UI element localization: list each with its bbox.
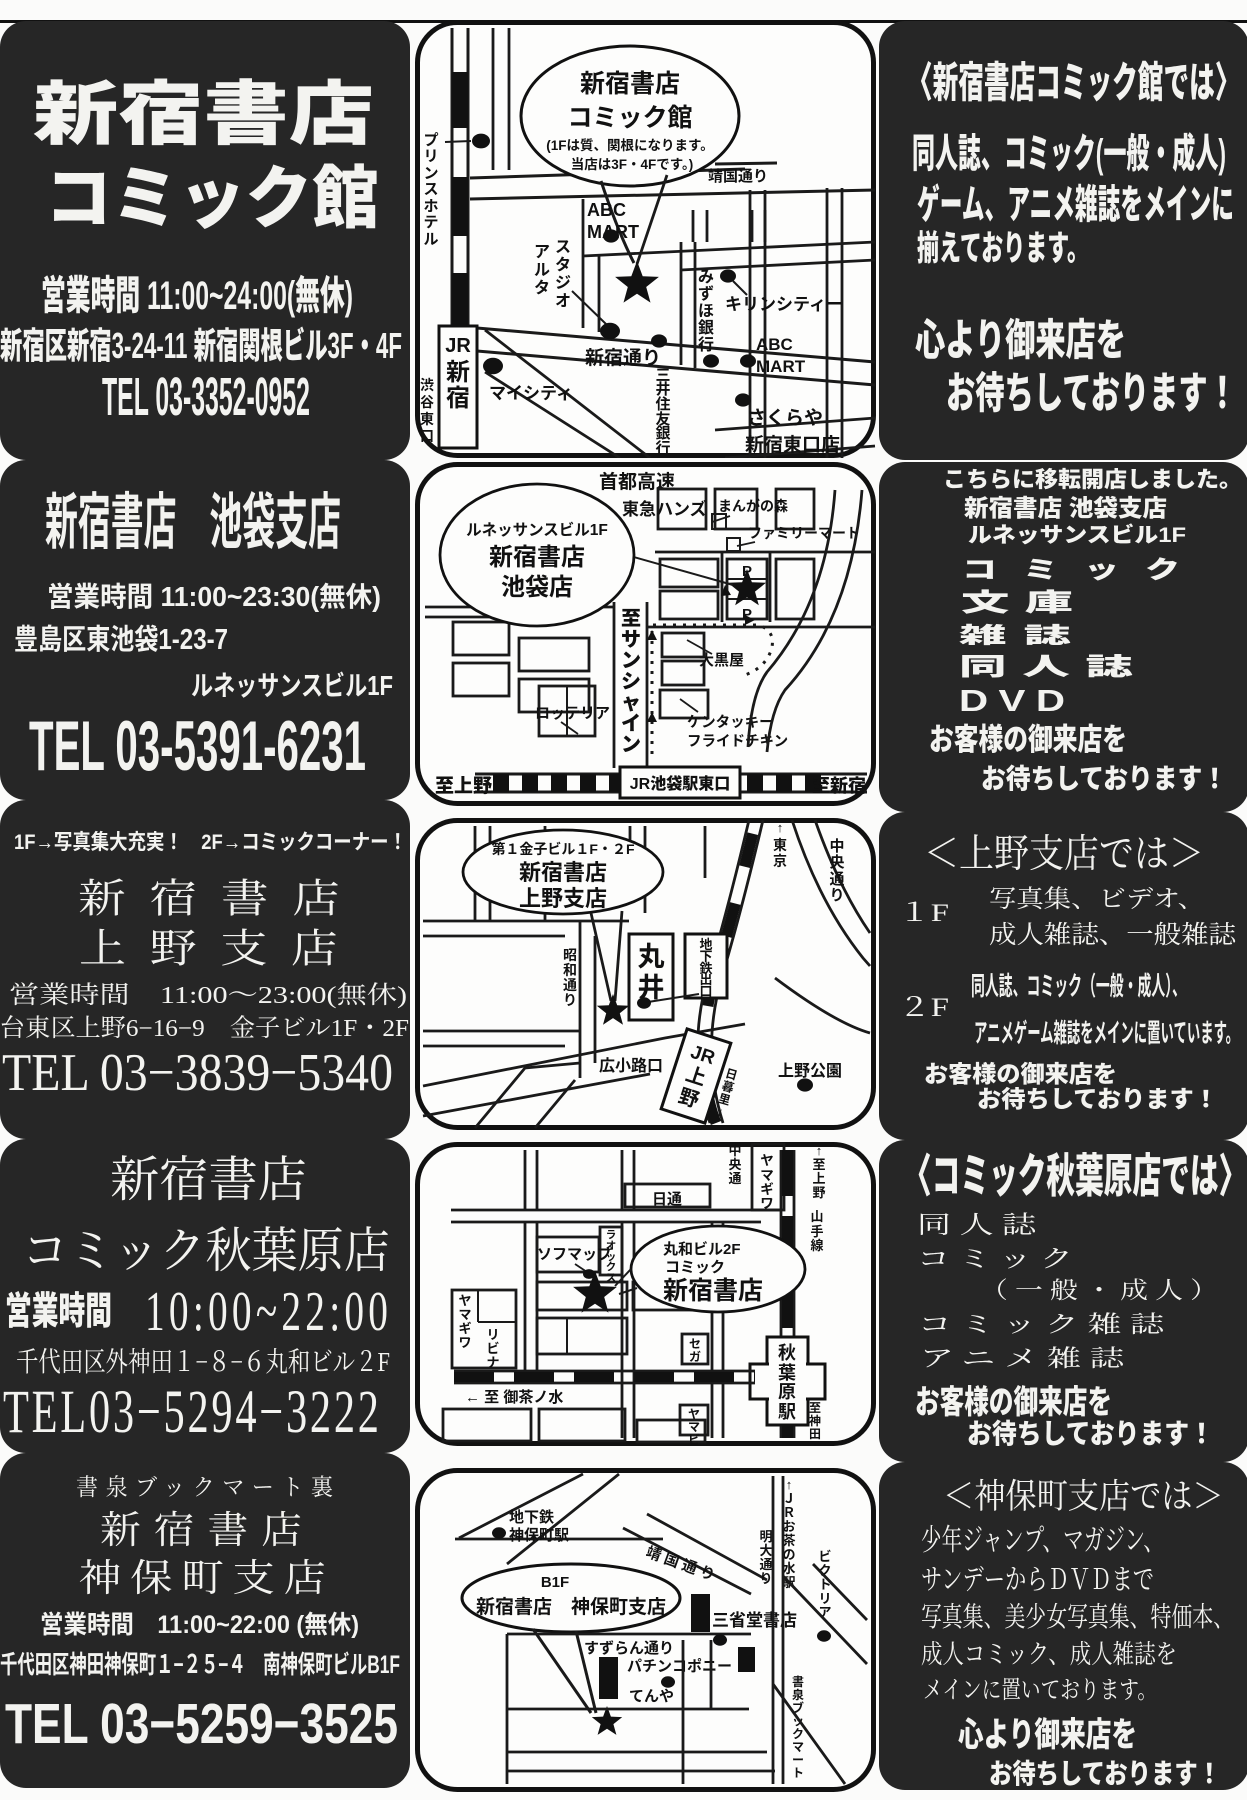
svg-text:第１金子ビル１F・２F: 第１金子ビル１F・２F: [491, 841, 635, 857]
svg-text:お: お: [782, 1519, 795, 1534]
svg-text:コミック: コミック: [665, 1259, 725, 1276]
svg-text:ず: ず: [698, 285, 714, 303]
svg-text:至上野: 至上野: [435, 775, 492, 797]
svg-text:ガ: ガ: [689, 1349, 701, 1364]
svg-text:ナ: ナ: [486, 1355, 499, 1370]
svg-text:中: 中: [728, 1143, 741, 1158]
svg-text:泉: 泉: [792, 1687, 804, 1702]
svg-text:和: 和: [563, 962, 577, 978]
svg-text:新宿書店: 新宿書店: [663, 1277, 763, 1305]
svg-text:至: 至: [621, 608, 641, 630]
svg-text:明: 明: [759, 1529, 772, 1544]
svg-text:新宿通り: 新宿通り: [585, 347, 661, 369]
svg-text:渋: 渋: [420, 377, 434, 393]
svg-text:リ: リ: [423, 148, 438, 165]
svg-text:ホ: ホ: [423, 198, 438, 215]
svg-text:ヤ: ヤ: [458, 1293, 471, 1308]
svg-text:キリンシティー: キリンシティー: [725, 295, 843, 314]
svg-text:野: 野: [812, 1185, 825, 1200]
svg-text:山: 山: [810, 1209, 823, 1224]
svg-text:行: 行: [698, 336, 714, 354]
svg-text:秋: 秋: [778, 1343, 796, 1363]
svg-text:← 至 御茶ノ水: ← 至 御茶ノ水: [465, 1388, 563, 1406]
svg-text:マ: マ: [458, 1307, 471, 1322]
svg-text:ビ: ビ: [486, 1341, 499, 1356]
svg-text:京: 京: [773, 853, 787, 869]
svg-text:央: 央: [829, 854, 844, 871]
svg-text:ジ: ジ: [555, 275, 571, 292]
svg-text:タ: タ: [555, 256, 571, 274]
svg-text:↑: ↑: [786, 1477, 793, 1492]
svg-text:↓: ↓: [812, 1440, 818, 1446]
svg-text:新宿書店: 新宿書店: [580, 70, 680, 98]
svg-text:東: 東: [773, 837, 787, 853]
svg-text:丸: 丸: [638, 942, 665, 972]
svg-text:行: 行: [655, 440, 670, 457]
svg-text:池袋店: 池袋店: [501, 574, 573, 601]
svg-text:至: 至: [812, 1157, 825, 1172]
svg-text:JR池袋駅東口: JR池袋駅東口: [630, 774, 730, 793]
svg-text:ル: ル: [534, 262, 550, 279]
svg-text:大: 大: [759, 1543, 772, 1558]
svg-text:プ: プ: [423, 132, 438, 149]
svg-text:ロッテリア: ロッテリア: [535, 705, 610, 722]
svg-text:上野支店: 上野支店: [519, 886, 607, 911]
svg-text:靖国通り: 靖国通り: [708, 168, 768, 185]
svg-text:ビ: ビ: [688, 1432, 700, 1446]
svg-text:MART: MART: [756, 357, 806, 376]
svg-text:↑: ↑: [816, 1143, 823, 1158]
svg-text:新: 新: [446, 359, 470, 386]
svg-text:サ: サ: [621, 629, 641, 651]
svg-text:ソフマップ: ソフマップ: [537, 1246, 612, 1263]
svg-text:り: り: [829, 887, 844, 904]
svg-text:新宿東口店: 新宿東口店: [745, 434, 840, 456]
svg-text:パチンコポニー: パチンコポニー: [627, 1658, 732, 1675]
svg-text:田: 田: [809, 1427, 821, 1441]
svg-text:ワ: ワ: [458, 1335, 471, 1350]
svg-text:マイシティ: マイシティ: [489, 384, 573, 403]
svg-text:ア: ア: [818, 1605, 831, 1620]
svg-text:ト: ト: [792, 1766, 804, 1780]
svg-text:線: 線: [810, 1238, 823, 1253]
svg-text:み: み: [698, 269, 714, 286]
svg-text:ン: ン: [423, 165, 438, 182]
svg-text:昭: 昭: [563, 947, 577, 963]
svg-text:新宿書店 神保町支店: 新宿書店 神保町支店: [476, 1595, 666, 1618]
svg-text:イ: イ: [621, 713, 641, 735]
svg-text:東: 東: [420, 411, 434, 427]
svg-text:シ: シ: [621, 671, 641, 693]
svg-text:神保町駅: 神保町駅: [509, 1527, 569, 1544]
svg-text:ン: ン: [621, 734, 641, 756]
svg-text:手: 手: [810, 1224, 823, 1239]
svg-text:Ｊ: Ｊ: [782, 1491, 795, 1506]
svg-text:り: り: [759, 1571, 772, 1586]
svg-text:↑: ↑: [777, 820, 784, 835]
svg-text:ル: ル: [423, 231, 438, 248]
svg-text:り: り: [563, 992, 577, 1008]
svg-text:神: 神: [809, 1413, 821, 1428]
svg-text:ス: ス: [423, 181, 438, 198]
svg-text:マ: マ: [760, 1168, 774, 1183]
svg-text:オ: オ: [555, 292, 571, 310]
svg-text:大黒屋: 大黒屋: [699, 651, 744, 669]
svg-text:水: 水: [782, 1561, 795, 1576]
svg-text:日通: 日通: [652, 1191, 682, 1208]
svg-text:中: 中: [829, 838, 844, 855]
svg-text:地下鉄: 地下鉄: [509, 1508, 554, 1526]
svg-text:リ: リ: [486, 1327, 499, 1342]
svg-text:ス: ス: [555, 239, 571, 256]
svg-text:書: 書: [792, 1674, 804, 1689]
svg-text:B1F: B1F: [541, 1574, 569, 1591]
svg-text:谷: 谷: [420, 394, 434, 410]
svg-text:Ｒ: Ｒ: [782, 1505, 795, 1520]
svg-text:当店は3F・4Fです。): 当店は3F・4Fです。): [571, 156, 693, 172]
svg-text:の: の: [782, 1547, 795, 1562]
svg-text:セ: セ: [689, 1337, 701, 1351]
svg-text:ビ: ビ: [818, 1549, 831, 1564]
svg-text:口: 口: [699, 984, 712, 999]
svg-text:ルネッサンスビル1F: ルネッサンスビル1F: [466, 520, 608, 539]
svg-text:通: 通: [563, 977, 577, 993]
svg-text:ワ: ワ: [760, 1196, 774, 1211]
svg-text:ク: ク: [792, 1727, 804, 1741]
svg-text:ー: ー: [792, 1753, 804, 1767]
svg-text:さくらや: さくらや: [747, 407, 823, 429]
svg-text:丸和ビル2F: 丸和ビル2F: [663, 1240, 741, 1258]
svg-text:ケンタッキー: ケンタッキー: [687, 714, 774, 731]
svg-text:銀: 銀: [698, 319, 714, 337]
svg-text:ABC: ABC: [756, 335, 793, 354]
svg-text:タ: タ: [534, 279, 550, 297]
svg-text:(1Fは質、関根になります。: (1Fは質、関根になります。: [546, 137, 713, 153]
svg-text:ス: ス: [606, 1272, 617, 1284]
svg-text:ン: ン: [621, 650, 641, 672]
svg-text:フライドチキン: フライドチキン: [687, 733, 788, 750]
svg-text:茶: 茶: [782, 1533, 795, 1548]
svg-text:ア: ア: [534, 244, 550, 261]
svg-text:ギ: ギ: [760, 1182, 774, 1197]
svg-text:通: 通: [829, 871, 844, 888]
svg-text:てんや: てんや: [629, 1688, 674, 1705]
svg-text:ファミリーマート: ファミリーマート: [748, 525, 860, 541]
svg-text:ABC: ABC: [587, 200, 626, 220]
svg-text:宿: 宿: [446, 385, 470, 412]
svg-text:リ: リ: [818, 1591, 831, 1606]
svg-text:ギ: ギ: [458, 1321, 471, 1336]
svg-text:上: 上: [812, 1171, 825, 1186]
svg-text:新宿書店: 新宿書店: [489, 544, 585, 571]
svg-text:広小路口: 広小路口: [599, 1056, 663, 1075]
svg-text:テ: テ: [423, 214, 438, 231]
svg-text:すずらん通り: すずらん通り: [584, 1640, 674, 1657]
svg-text:JR: JR: [445, 335, 471, 357]
svg-text:ヤ: ヤ: [688, 1407, 700, 1421]
svg-text:コミック館: コミック館: [567, 104, 692, 132]
svg-text:ャ: ャ: [621, 692, 641, 714]
svg-text:口: 口: [420, 428, 434, 444]
svg-text:央: 央: [728, 1157, 741, 1172]
svg-text:至新宿: 至新宿: [812, 776, 866, 796]
svg-text:新宿書店: 新宿書店: [519, 860, 607, 885]
svg-text:葉: 葉: [778, 1363, 796, 1383]
svg-text:原: 原: [778, 1382, 796, 1402]
svg-text:まんがの森: まんがの森: [718, 498, 788, 514]
svg-text:東急ハンズ: 東急ハンズ: [622, 499, 707, 519]
svg-text:通: 通: [728, 1171, 741, 1186]
svg-text:マ: マ: [792, 1740, 804, 1754]
svg-text:至: 至: [809, 1401, 821, 1415]
svg-text:駅: 駅: [778, 1402, 796, 1422]
svg-text:上野公園: 上野公園: [778, 1062, 842, 1080]
svg-text:通: 通: [759, 1557, 772, 1572]
svg-text:マ: マ: [688, 1420, 700, 1434]
svg-text:ほ: ほ: [698, 303, 714, 320]
svg-text:ヤ: ヤ: [760, 1153, 774, 1168]
